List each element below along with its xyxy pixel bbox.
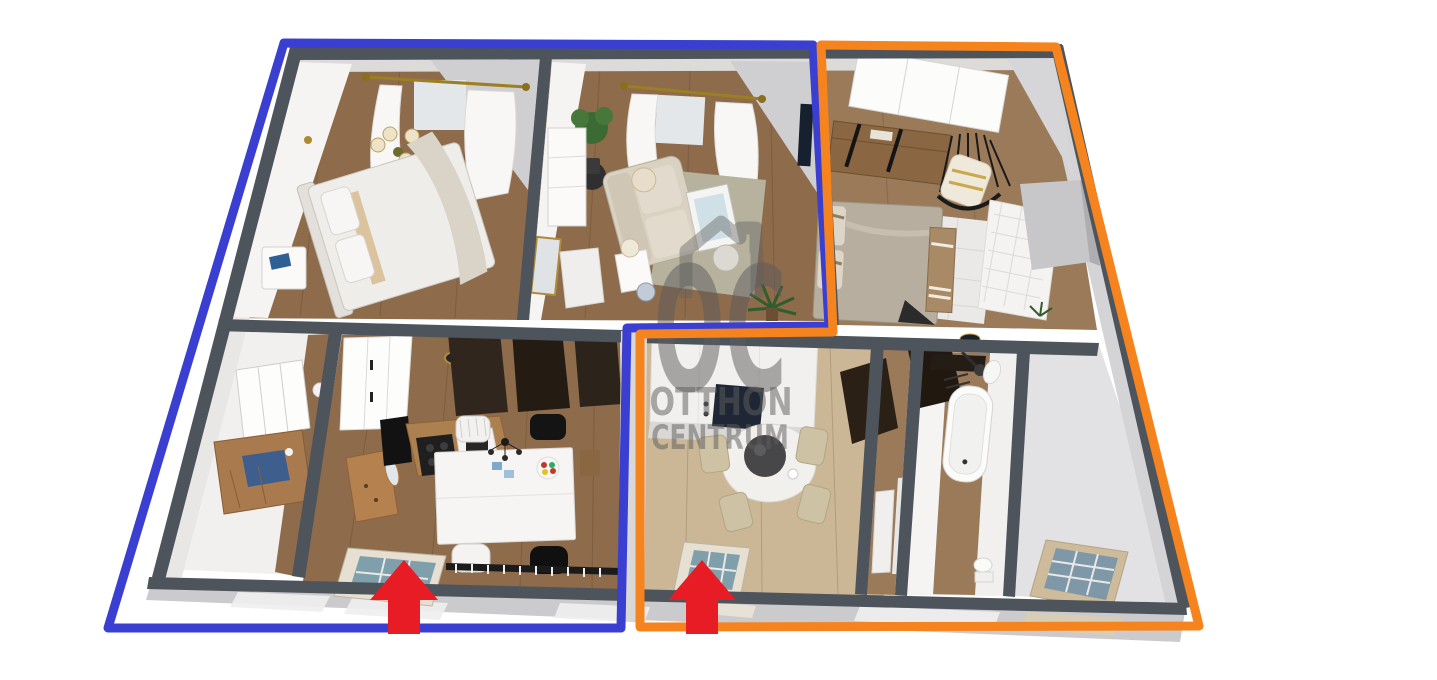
desk	[214, 430, 312, 514]
floor-lamp	[637, 283, 655, 301]
bed-bench	[926, 227, 956, 312]
window	[236, 360, 310, 440]
dark-door	[512, 331, 570, 412]
watermark-line2: CENTRUM	[651, 418, 789, 458]
cup	[504, 470, 514, 478]
dark-door	[448, 332, 508, 416]
door-frame	[872, 490, 894, 573]
high-chair	[580, 450, 600, 476]
dresser	[560, 248, 604, 308]
window	[414, 80, 466, 130]
picture-frame	[531, 237, 561, 295]
shelf-unit	[548, 128, 586, 226]
watermark: OC OTTHON CENTRUM	[650, 222, 793, 458]
nightstand	[262, 247, 306, 289]
fruit-plate	[537, 457, 559, 479]
floorplan-page: OC OTTHON CENTRUM	[0, 0, 1437, 680]
window	[655, 95, 705, 145]
dark-door	[574, 331, 622, 407]
wall-sconce	[304, 136, 312, 144]
curtain	[465, 90, 516, 200]
cup	[492, 462, 502, 470]
tall-cabinets	[340, 336, 412, 430]
floorplan-render: OC OTTHON CENTRUM	[0, 0, 1437, 680]
